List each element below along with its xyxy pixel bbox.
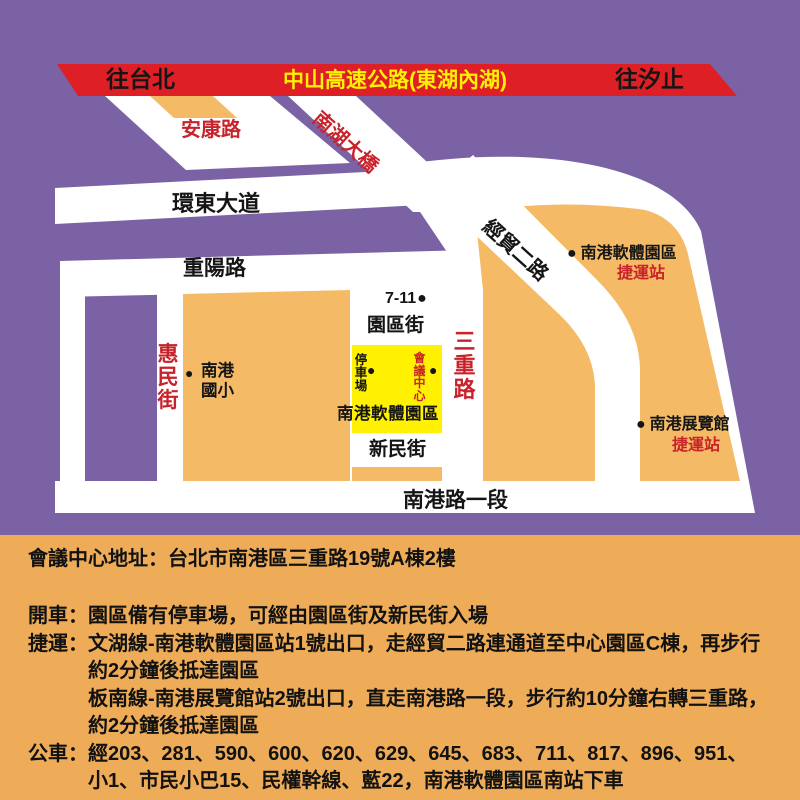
poi-elementary-school-line2: 國小 [201,382,234,402]
poi-software-park-station-name: 南港軟體園區 [581,245,677,263]
directions-bus-line2: 小1、市民小巴15、民權幹線、藍22，南港軟體園區南站下車 [88,768,772,796]
marker-dot-icon: ● [636,416,646,434]
directions-mrt-line4: 約2分鐘後抵達園區 [88,713,772,741]
conference-address: 會議中心地址：台北市南港區三重路19號A棟2樓 [28,546,772,572]
access-map: 往台北 中山高速公路(東湖內湖) 往汐止 安康路 南湖大橋 環東大道 重陽路 經… [0,0,800,535]
road-left-strip [60,262,85,481]
directions-mrt: 捷運： 文湖線-南港軟體園區站1號出口，走經貿二路連通道至中心園區C棟，再步行 … [28,631,772,741]
marker-dot-icon: ● [429,362,437,378]
directions-panel: 會議中心地址：台北市南港區三重路19號A棟2樓 開車： 園區備有停車場，可經由園… [0,535,800,800]
poi-software-park-station: ● 南港軟體園區 捷運站 [567,245,677,282]
road-label-huimin: 惠民街 [156,343,180,412]
road-label-ankang: 安康路 [181,119,241,141]
directions-bus: 公車： 經203、281、590、600、620、629、645、683、711… [28,741,772,796]
poi-elementary-school: 南港 國小 [201,362,234,401]
road-label-huandong: 環東大道 [172,192,260,216]
banner-to-xizhi: 往汐止 [615,67,684,92]
poi-software-park-station-row: ● 南港軟體園區 [567,245,677,263]
directions-mrt-line2: 約2分鐘後抵達園區 [88,658,772,686]
directions-mrt-line3: 板南線-南港展覽館站2號出口，直走南港路一段，步行約10分鐘右轉三重路， [88,686,772,714]
poi-software-park-station-sub: 捷運站 [617,265,677,283]
directions-mrt-label: 捷運： [28,631,88,659]
directions-bus-text: 經203、281、590、600、620、629、645、683、711、817… [88,741,772,796]
poi-software-park-label: 南港軟體園區 [337,405,439,423]
directions-drive-label: 開車： [28,603,88,631]
directions-drive-text: 園區備有停車場，可經由園區街及新民街入場 [88,603,772,631]
page: 往台北 中山高速公路(東湖內湖) 往汐止 安康路 南湖大橋 環東大道 重陽路 經… [0,0,800,800]
marker-dot-icon: ● [185,365,193,381]
poi-parking-label: 停車場 [354,354,368,393]
poi-exhibition-station-name: 南港展覽館 [650,416,730,434]
directions-drive: 開車： 園區備有停車場，可經由園區街及新民街入場 [28,603,772,631]
marker-dot-icon: ● [567,245,577,263]
road-label-yuanqu: 園區街 [367,316,424,337]
road-label-xinmin: 新民街 [369,440,426,461]
poi-exhibition-station: ● 南港展覽館 捷運站 [636,416,730,454]
road-label-nangang-rd: 南港路一段 [403,489,508,512]
marker-dot-icon: ● [367,362,375,378]
directions-content: 會議中心地址：台北市南港區三重路19號A棟2樓 開車： 園區備有停車場，可經由園… [0,535,800,796]
poi-exhibition-station-sub: 捷運站 [672,437,730,455]
road-label-chongyang: 重陽路 [183,257,246,280]
banner-to-taipei: 往台北 [106,67,175,92]
directions-mrt-line1: 文湖線-南港軟體園區站1號出口，走經貿二路連通道至中心園區C棟，再步行 [88,631,772,659]
directions-bus-label: 公車： [28,741,88,769]
poi-exhibition-station-row: ● 南港展覽館 [636,416,730,434]
road-label-sanchong: 三重路 [452,330,477,402]
directions-rows: 開車： 園區備有停車場，可經由園區街及新民街入場 捷運： 文湖線-南港軟體園區站… [28,603,772,796]
poi-seven-eleven: 7-11● [385,290,427,308]
directions-bus-line1: 經203、281、590、600、620、629、645、683、711、817… [88,741,772,769]
marker-dot-icon: ● [417,290,427,308]
poi-conference-center-label: 會議中心 [413,352,426,402]
banner-highway-name: 中山高速公路(東湖內湖) [283,69,507,92]
poi-elementary-school-line1: 南港 [201,362,234,382]
poi-seven-eleven-label: 7-11 [385,290,416,308]
block-below-xinmin [352,467,442,481]
directions-mrt-text: 文湖線-南港軟體園區站1號出口，走經貿二路連通道至中心園區C棟，再步行 約2分鐘… [88,631,772,741]
